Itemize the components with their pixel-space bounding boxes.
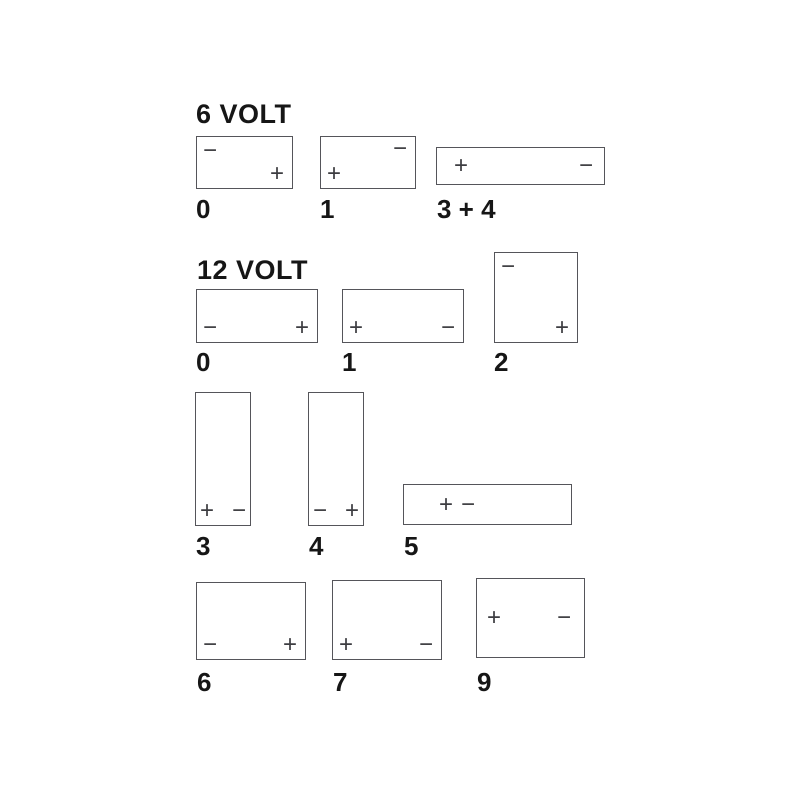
positive-terminal: + (345, 499, 359, 523)
battery-label-12v-1: 1 (342, 349, 356, 375)
positive-terminal: + (555, 316, 569, 340)
battery-label-12v-0: 0 (196, 349, 210, 375)
battery-box-6v-0: − + (196, 136, 293, 189)
negative-terminal: − (203, 139, 217, 163)
battery-box-12v-2: − + (494, 252, 578, 343)
negative-terminal: − (232, 499, 246, 523)
positive-terminal: + (339, 633, 353, 657)
battery-label-12v-6: 6 (197, 669, 211, 695)
positive-terminal: + (349, 316, 363, 340)
battery-box-12v-5: + − (403, 484, 572, 525)
battery-box-12v-6: − + (196, 582, 306, 660)
battery-label-6v-3-4: 3 + 4 (437, 196, 496, 222)
positive-terminal: + (439, 493, 453, 517)
battery-label-12v-7: 7 (333, 669, 347, 695)
negative-terminal: − (441, 316, 455, 340)
battery-layout-diagram: 6 VOLT − + 0 − + 1 + − 3 + 4 12 VOLT − +… (0, 0, 800, 800)
negative-terminal: − (393, 137, 407, 161)
battery-box-12v-0: − + (196, 289, 318, 343)
positive-terminal: + (295, 316, 309, 340)
battery-label-12v-5: 5 (404, 533, 418, 559)
negative-terminal: − (501, 255, 515, 279)
positive-terminal: + (454, 154, 468, 178)
negative-terminal: − (461, 493, 475, 517)
positive-terminal: + (487, 606, 501, 630)
battery-label-12v-2: 2 (494, 349, 508, 375)
positive-terminal: + (283, 633, 297, 657)
battery-label-6v-0: 0 (196, 196, 210, 222)
battery-label-6v-1: 1 (320, 196, 334, 222)
battery-label-12v-4: 4 (309, 533, 323, 559)
battery-box-12v-1: + − (342, 289, 464, 343)
battery-label-12v-3: 3 (196, 533, 210, 559)
positive-terminal: + (270, 162, 284, 186)
positive-terminal: + (327, 162, 341, 186)
negative-terminal: − (557, 606, 571, 630)
battery-box-12v-7: + − (332, 580, 442, 660)
battery-box-12v-4: − + (308, 392, 364, 526)
battery-box-12v-9: + − (476, 578, 585, 658)
negative-terminal: − (579, 154, 593, 178)
negative-terminal: − (203, 316, 217, 340)
section-title-12-volt: 12 VOLT (197, 257, 308, 284)
section-title-6-volt: 6 VOLT (196, 101, 292, 128)
negative-terminal: − (419, 633, 433, 657)
battery-box-6v-1: − + (320, 136, 416, 189)
battery-box-6v-3-4: + − (436, 147, 605, 185)
negative-terminal: − (203, 633, 217, 657)
positive-terminal: + (200, 499, 214, 523)
negative-terminal: − (313, 499, 327, 523)
battery-box-12v-3: + − (195, 392, 251, 526)
battery-label-12v-9: 9 (477, 669, 491, 695)
